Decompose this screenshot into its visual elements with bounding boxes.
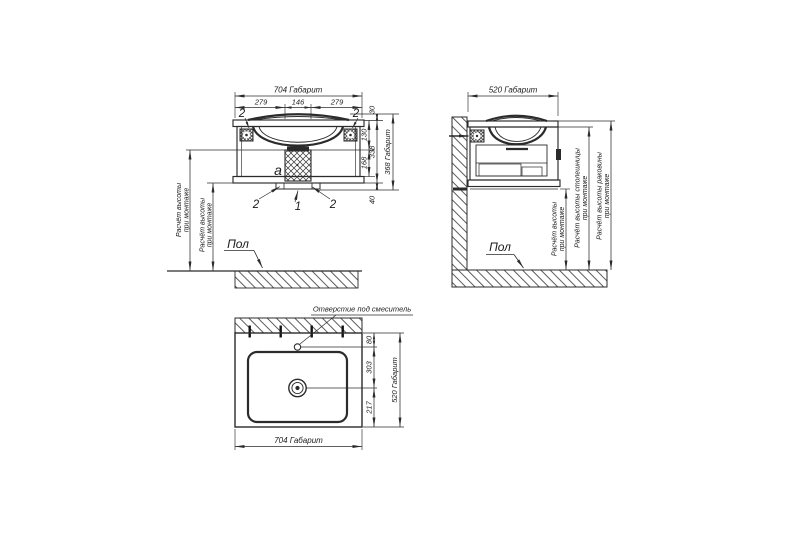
side-depth-dimension: 520 Габарит [468, 86, 558, 117]
mount-note-2-line1: Расчёт высоты [200, 197, 207, 252]
dim-plinth: 40 [368, 195, 377, 204]
front-bottom-callouts: 2 1 2 [252, 187, 337, 214]
front-mount-height-dimensions: Расчёт высоты при монтаже Расчёт высоты … [176, 150, 237, 271]
dim-basin-section: 130 [360, 128, 369, 141]
door-hinge [556, 149, 561, 160]
dim-rim: 30 [368, 105, 377, 114]
floor-hatch [235, 271, 358, 288]
floor-hatch-side [452, 270, 607, 287]
note-basin-line1: Расчёт высоты раковины [597, 151, 604, 240]
callout-bottom-center: 1 [295, 201, 301, 213]
front-view: Пол Расчёт высоты при монтаже Расчёт выс… [167, 86, 399, 289]
vanity-installation-drawing: Пол Расчёт высоты при монтаже Расчёт выс… [0, 0, 800, 536]
dim-drain-to-front: 217 [365, 400, 374, 414]
dim-width-center: 146 [292, 98, 305, 107]
dim-depth-total-top: 520 Габарит [390, 357, 399, 403]
faucet-hole-label: Отверстие под смеситель [313, 305, 411, 314]
basin-bowl-inner [259, 127, 337, 143]
siphon-label: a [274, 162, 282, 178]
mount-bracket-right [344, 129, 357, 141]
mount-bracket-left [240, 129, 253, 141]
note-basin-line2: при монтаже [604, 174, 611, 219]
note-mount-line2: при монтаже [559, 207, 566, 252]
note-countertop-line2: при монтаже [582, 176, 589, 221]
front-cabinet: a [233, 114, 364, 189]
mount-note-1-line2: при монтаже [184, 188, 191, 233]
countertop-front [233, 120, 364, 127]
mount-note-1-line1: Расчёт высоты [176, 182, 183, 237]
drain [289, 379, 306, 396]
wall-hatch [452, 117, 467, 270]
note-countertop-line1: Расчёт высоты столешницы [575, 147, 582, 248]
mount-bracket-side [470, 130, 484, 142]
basin-bowl-outer [253, 127, 343, 146]
faucet-hole [294, 344, 300, 350]
dim-back-to-drain: 303 [365, 360, 374, 373]
technical-drawing-canvas: Пол Расчёт высоты при монтаже Расчёт выс… [0, 0, 800, 536]
floor-callout: Пол [224, 237, 263, 268]
dim-width-right: 279 [330, 98, 344, 107]
dim-width-left: 279 [254, 98, 268, 107]
side-view: 520 Габарит Пол [449, 86, 615, 288]
note-mount-line1: Расчёт высоты [552, 201, 559, 256]
dim-width-total: 704 Габарит [274, 86, 323, 95]
top-width-dimension: 704 Габарит [235, 429, 362, 450]
top-view: Отверстие под смеситель 80 303 217 520 Г… [235, 305, 413, 451]
floor-label-side: Пол [489, 240, 511, 254]
dim-width-total-top: 704 Габарит [274, 436, 323, 445]
floor-label: Пол [227, 237, 249, 251]
dim-back-to-faucet: 80 [365, 335, 374, 344]
side-height-dimensions: Расчёт высоты при монтаже Расчёт высоты … [547, 121, 615, 270]
callout-top-left: 2 [238, 108, 246, 120]
bottom-rail-side [468, 180, 560, 187]
floor-callout-side: Пол [486, 240, 524, 268]
mount-note-2-line2: при монтаже [207, 203, 214, 248]
callout-bottom-left: 2 [252, 199, 260, 211]
dim-body: 338 [368, 145, 377, 158]
dim-height-total: 368 Габарит [383, 129, 392, 175]
callout-bottom-right: 2 [329, 199, 337, 211]
countertop-side [468, 121, 558, 127]
dim-depth-total: 520 Габарит [489, 86, 538, 95]
lower-wall-fixing [453, 188, 467, 191]
